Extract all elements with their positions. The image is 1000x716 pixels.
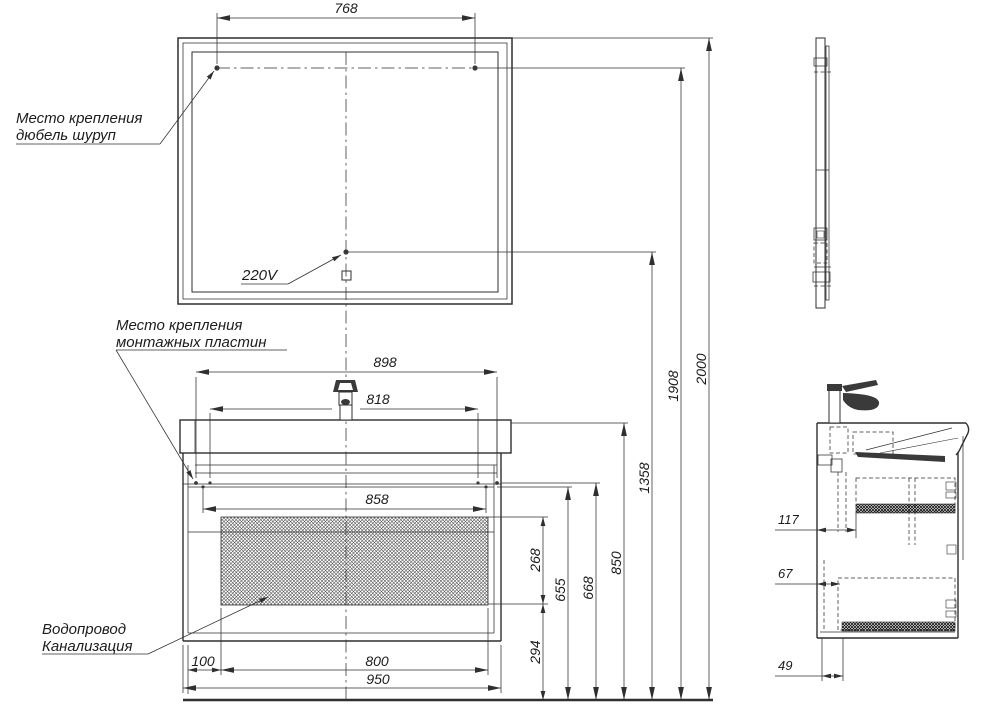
plumbing-text-1: Водопровод [42, 621, 126, 638]
dim-800-label: 800 [365, 653, 389, 669]
dim-668-label: 668 [580, 576, 596, 600]
dim-49-label: 49 [778, 658, 792, 673]
dowel-leader-line [160, 71, 214, 144]
socket-symbol [342, 271, 351, 280]
dim-side-offset: 100 [188, 608, 221, 694]
dim-cabinet-opening: 858 [201, 485, 487, 513]
installation-drawing: 768 Место крепления дюбель шуруп 220V Ме… [0, 0, 1000, 716]
dim-67-label: 67 [778, 566, 793, 581]
vanity-side-view [817, 380, 969, 681]
dim-1358-label: 1358 [636, 462, 652, 493]
pipe-stubs [822, 638, 843, 681]
dim-898-label: 898 [373, 354, 397, 370]
mount-dowel-text-1: Место крепления [16, 110, 142, 127]
basin-front-profile [956, 423, 969, 455]
basin-underside [855, 452, 945, 462]
dim-655-label: 655 [552, 578, 568, 602]
dim-858-label: 858 [365, 491, 389, 507]
mount-plates-text-1: Место крепления [116, 317, 242, 334]
faucet-side [827, 380, 879, 423]
mirror-side-view [813, 38, 831, 308]
mirror-mounting-holes [214, 65, 685, 70]
dim-850-label: 850 [608, 551, 624, 575]
socket-leader-line [288, 255, 341, 284]
vanity-front-view [180, 380, 511, 641]
dim-2000-label: 2000 [693, 353, 709, 385]
dim-268-label: 268 [527, 548, 543, 573]
plumbing-leader-line [148, 597, 268, 654]
drain-pipe-hidden [838, 472, 846, 532]
label-mount-plates: Место крепления монтажных пластин [116, 317, 287, 479]
service-hatch-area [221, 517, 488, 605]
lower-drawer-slide [842, 622, 955, 631]
dim-100-label: 100 [191, 653, 215, 669]
dim-950-label: 950 [366, 671, 390, 687]
plumbing-text-2: Канализация [42, 638, 133, 655]
mount-dowel-text-2: дюбель шуруп [16, 127, 116, 144]
dim-pipe-offsets: 117 67 49 [775, 512, 856, 676]
dim-818-label: 818 [366, 391, 390, 407]
power-socket-label: 220V [241, 267, 279, 284]
dim-117-label: 117 [778, 512, 799, 527]
upper-drawer-slide [856, 504, 955, 513]
dim-768-label: 768 [334, 0, 358, 16]
mount-plates-text-2: монтажных пластин [116, 334, 266, 351]
power-socket: 220V [241, 249, 351, 284]
mirror-front-view [178, 38, 512, 304]
washbasin [180, 420, 511, 453]
technical-drawing-svg: 768 Место крепления дюбель шуруп 220V Ме… [0, 0, 1000, 716]
dim-294-label: 294 [527, 640, 543, 665]
drain-trap [818, 455, 832, 465]
plates-leader-line [116, 350, 193, 479]
mounting-plate-point-right [495, 481, 499, 485]
dim-1908-label: 1908 [665, 370, 681, 401]
label-plumbing: Водопровод Канализация [42, 597, 268, 655]
label-mount-dowel: Место крепления дюбель шуруп [16, 71, 214, 144]
mounting-plate-point-left [194, 481, 198, 485]
faucet-front [333, 380, 358, 420]
dim-cabinet-span: 950 [183, 645, 501, 693]
